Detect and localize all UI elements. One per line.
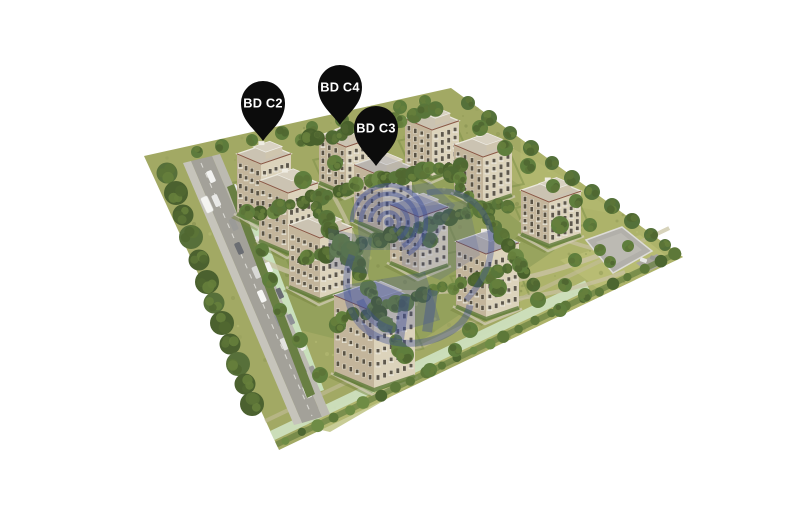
svg-text:BD C2: BD C2 <box>243 96 282 111</box>
svg-text:BD C4: BD C4 <box>320 80 360 95</box>
svg-text:BD C3: BD C3 <box>356 121 395 136</box>
